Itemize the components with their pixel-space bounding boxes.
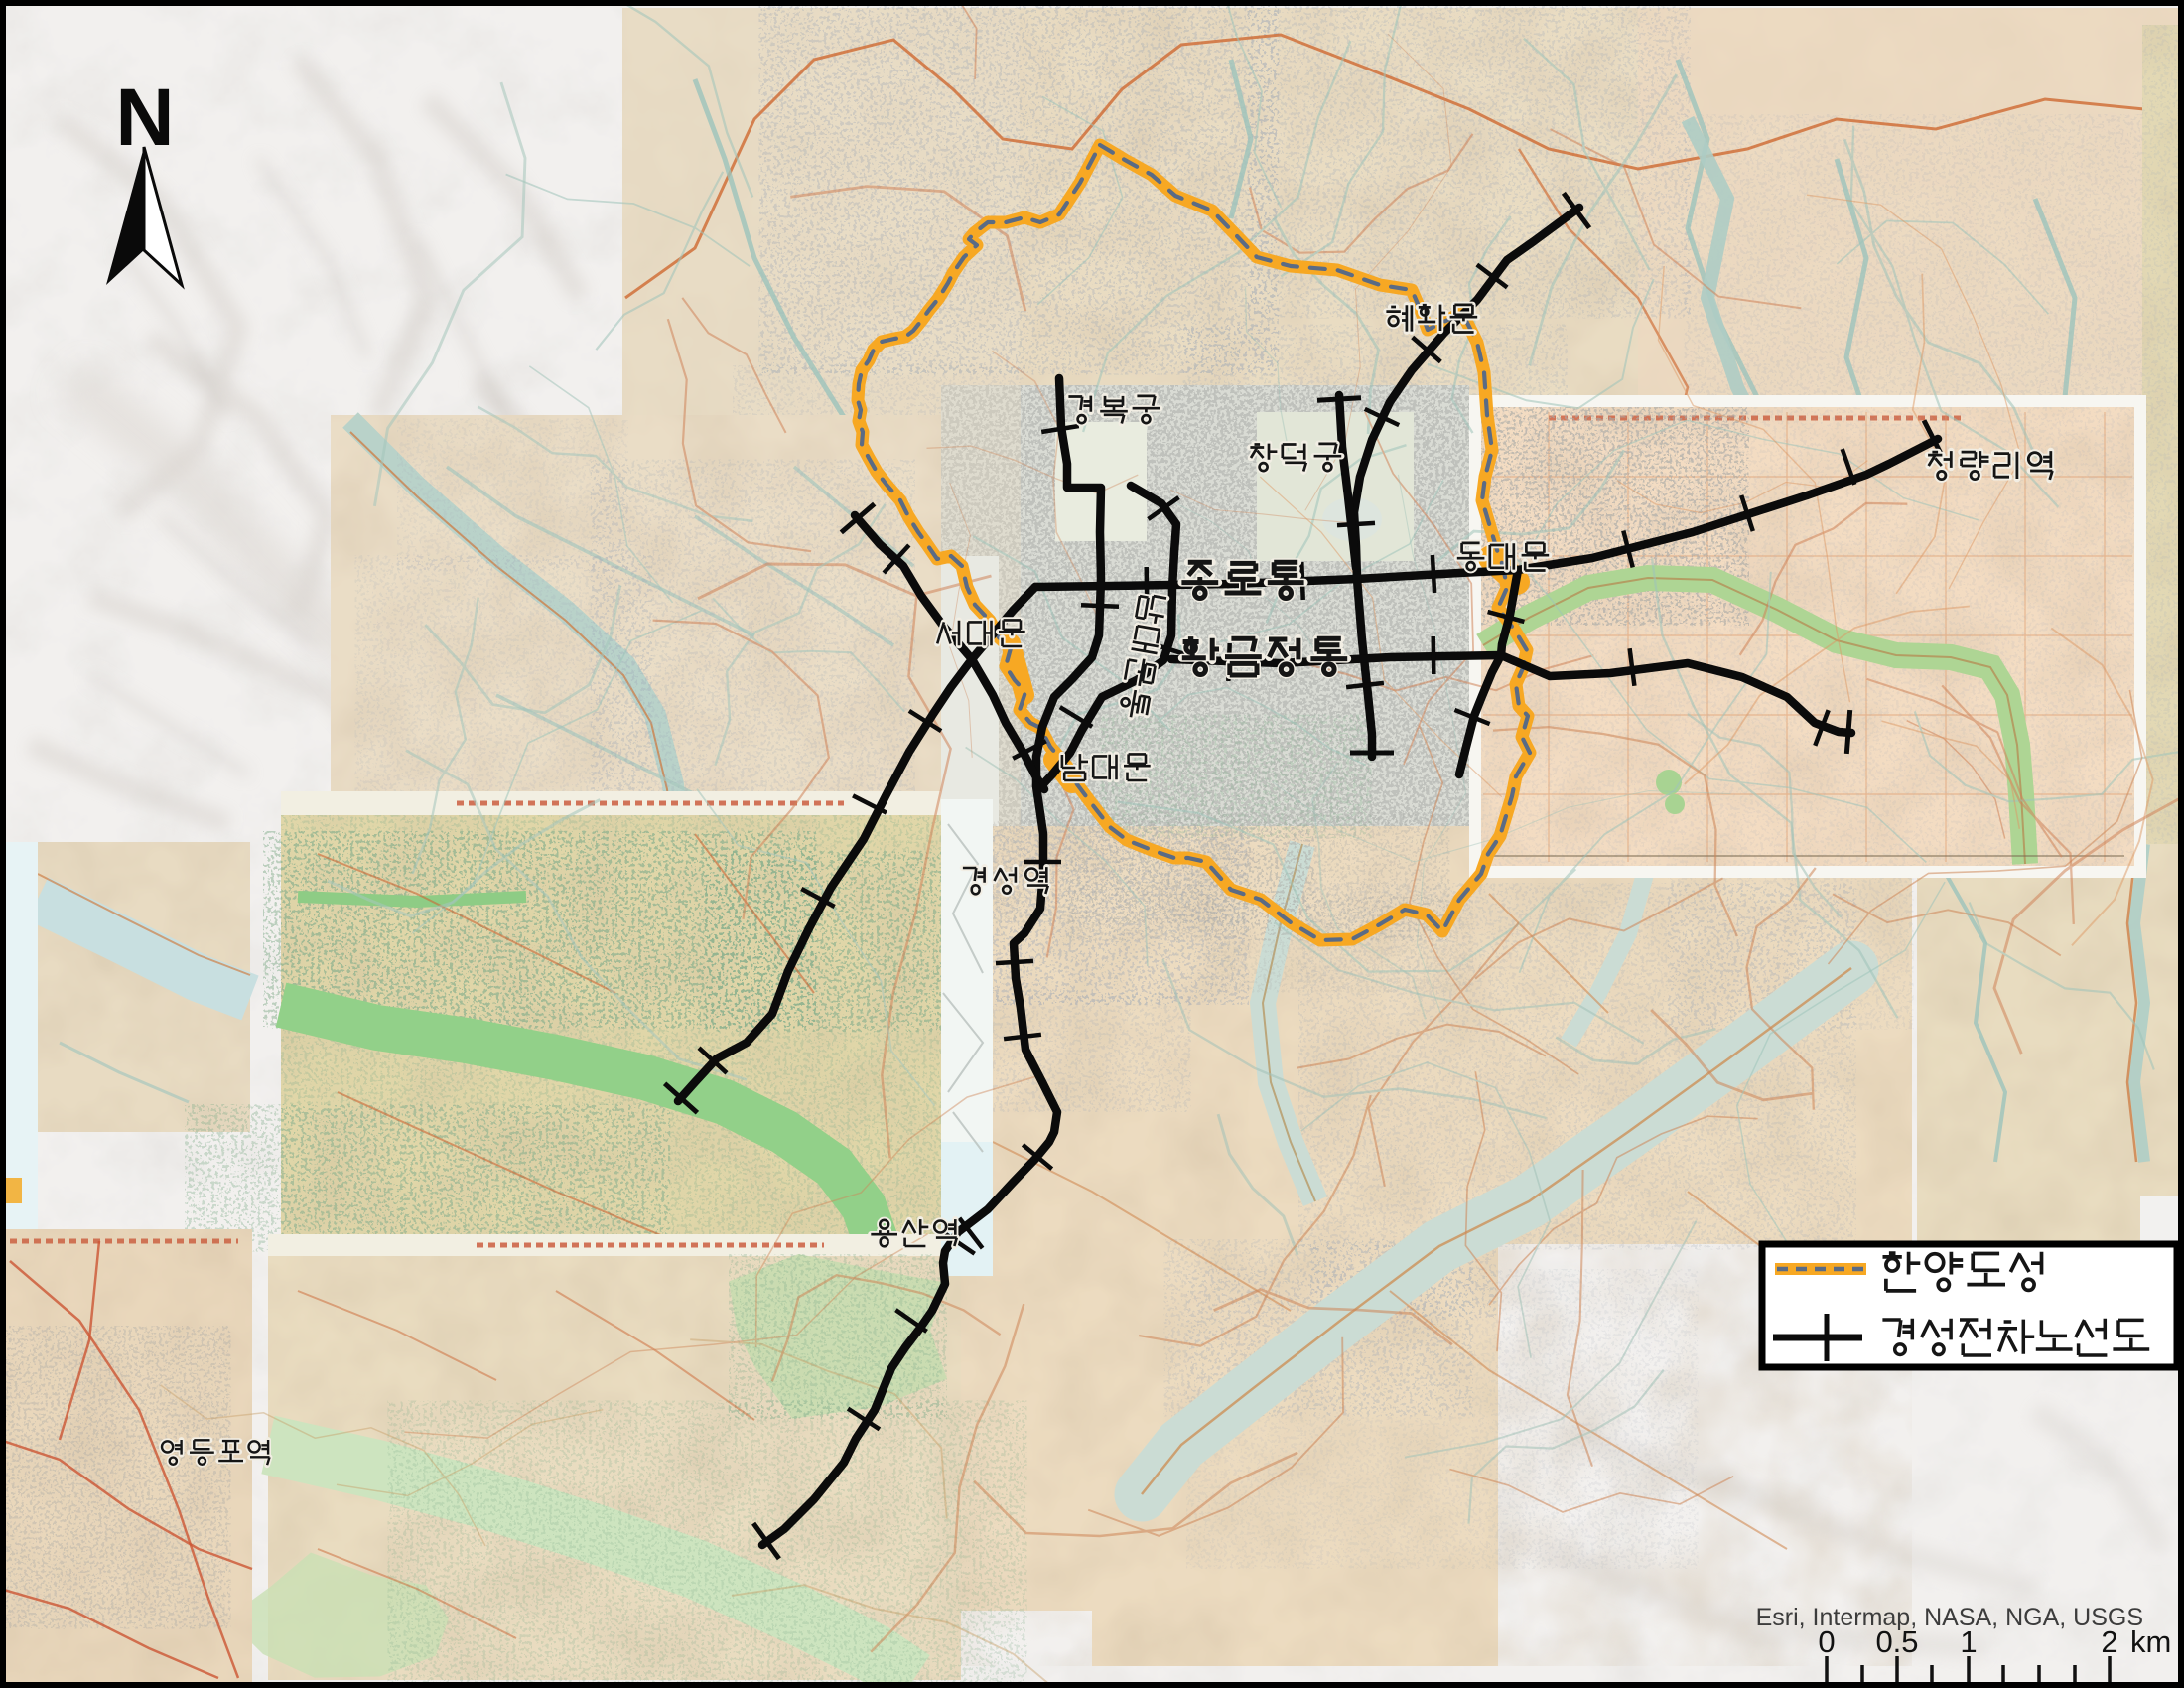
svg-text:2: 2 — [2101, 1624, 2117, 1659]
svg-text:1: 1 — [1960, 1624, 1977, 1659]
svg-text:0.5: 0.5 — [1875, 1624, 1918, 1659]
svg-text:Esri, Intermap, NASA, NGA, USG: Esri, Intermap, NASA, NGA, USGS — [1756, 1604, 2143, 1631]
svg-text:0: 0 — [1818, 1624, 1835, 1659]
svg-text:km: km — [2130, 1624, 2171, 1659]
